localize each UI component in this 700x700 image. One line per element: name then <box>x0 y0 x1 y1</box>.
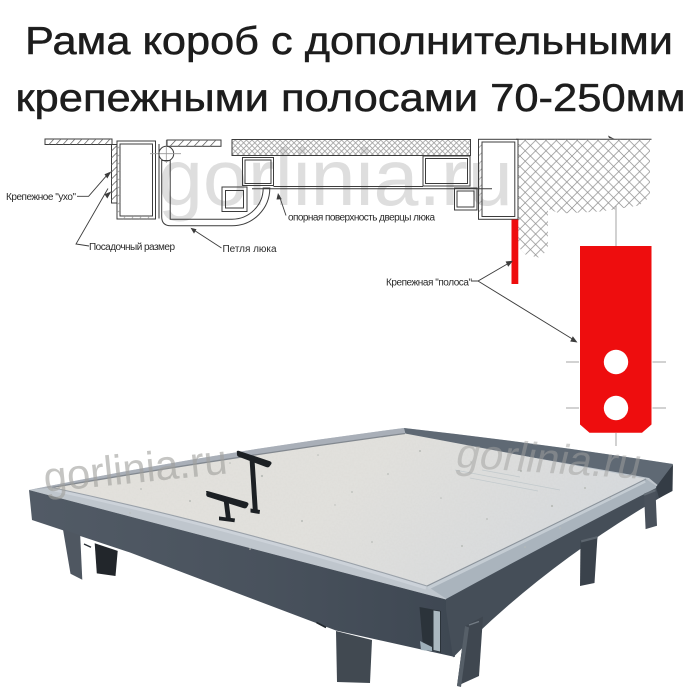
svg-text:Петля люка: Петля люка <box>223 244 277 255</box>
svg-text:Посадочный размер: Посадочный размер <box>89 242 175 253</box>
svg-text:Крепежная "полоса": Крепежная "полоса" <box>386 278 472 289</box>
svg-text:Крепежное "ухо": Крепежное "ухо" <box>6 192 76 203</box>
svg-text:крепежными полосами 70-250мм: крепежными полосами 70-250мм <box>16 77 686 120</box>
svg-text:Рама короб с дополнительными: Рама короб с дополнительными <box>25 20 673 63</box>
svg-text:опорная поверхность дверцы люк: опорная поверхность дверцы люка <box>288 213 435 224</box>
